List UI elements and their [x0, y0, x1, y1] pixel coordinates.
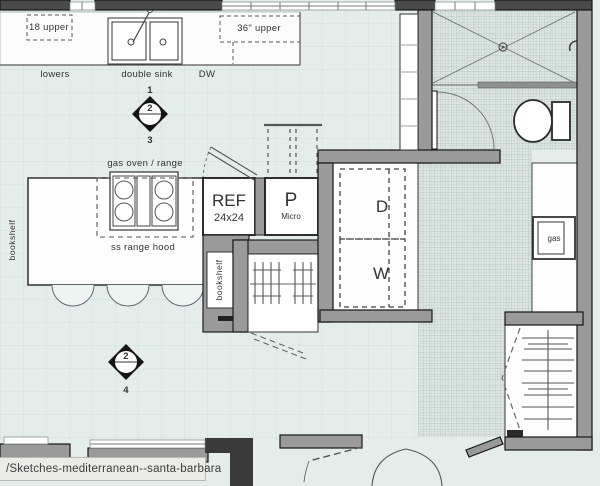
marker-a-face: 2: [147, 103, 153, 114]
gas-range: [110, 172, 178, 230]
marker-b-face: 2: [123, 351, 129, 362]
floor-plan-screenshot: 2 1 3 2 4 18 upper 36" upper lowers doub…: [0, 0, 600, 486]
label-dryer: D: [376, 197, 388, 216]
status-bar-text: /Sketches-mediterranean--santa-barbara: [6, 463, 221, 475]
label-pantry: P: [285, 190, 298, 211]
floor-plan-drawing: 2 1 3 2 4 18 upper 36" upper lowers doub…: [0, 0, 600, 486]
label-dw: DW: [199, 69, 215, 80]
laundry-room: [333, 163, 418, 310]
label-double-sink: double sink: [121, 69, 172, 80]
tall-shelf: [400, 14, 418, 150]
label-micro: Micro: [281, 212, 301, 221]
label-18-upper: 18 upper: [29, 22, 69, 33]
marker-a-bottom: 3: [147, 135, 153, 146]
label-ref: REF: [212, 191, 246, 210]
island-stools: [52, 285, 204, 306]
marker-b-bottom: 4: [123, 385, 129, 396]
label-lowers: lowers: [40, 69, 69, 80]
label-washer: W: [373, 264, 389, 283]
bedroom-closet: [502, 325, 577, 437]
label-gas: gas: [548, 234, 561, 243]
label-gas-range: gas oven / range: [107, 158, 183, 169]
label-36-upper: 36" upper: [237, 23, 281, 34]
marker-a-top: 1: [147, 85, 153, 96]
wall-divider: [255, 178, 265, 235]
label-ref-size: 24x24: [214, 212, 244, 224]
status-bar: /Sketches-mediterranean--santa-barbara: [0, 457, 206, 481]
label-range-hood: ss range hood: [111, 242, 175, 253]
label-island-bookshelf: bookshelf: [7, 219, 17, 260]
toilet: [514, 100, 570, 142]
label-cabinet-bookshelf: bookshelf: [214, 259, 224, 300]
